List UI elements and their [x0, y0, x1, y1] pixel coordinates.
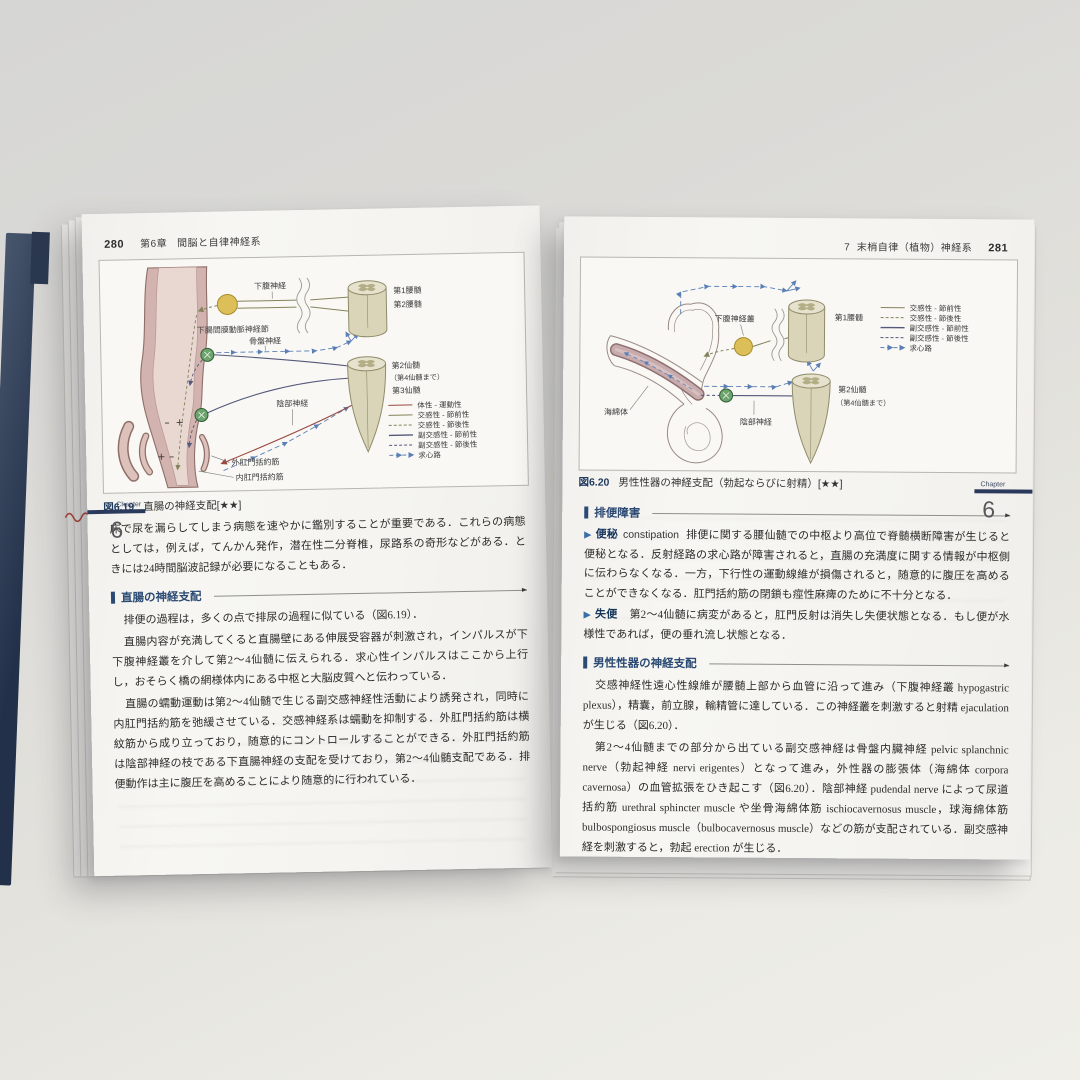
figure-6-20: 下腹神経叢 第1腰髄 海綿体 陰部神経 第2仙髄 （第4仙髄まで） 交感性 - …: [579, 256, 1018, 473]
section-title: 末梢自律（植物）神経系: [857, 242, 973, 254]
heading-rule: [213, 589, 526, 596]
label-s3: 第3仙髄: [392, 385, 421, 396]
heading-bar: [111, 592, 115, 604]
definition-item-constipation: ▶便秘constipation排便に関する腰仙髄での中枢より高位で脊髄横断障害が…: [584, 525, 1011, 606]
label-s2: 第2仙髄: [838, 384, 867, 394]
svg-text:−: −: [165, 419, 170, 428]
heading-text: 直腸の神経支配: [121, 588, 202, 606]
paragraph: 交感神経性遠心性線維が腰髄上部から血管に沿って進み（下腹神経叢 hypogast…: [583, 675, 1009, 738]
label-pelvic-nerve: 骨盤神経: [249, 335, 281, 346]
heading-text: 男性性器の神経支配: [593, 655, 697, 672]
corpus-cavernosum-band: [616, 350, 698, 395]
label-internal-anal-sphincter: 内肛門括約筋: [236, 471, 284, 482]
heading-bar: [584, 506, 588, 518]
label-l2: 第2腰髄: [393, 299, 422, 310]
figure-legend: 交感性 - 節前性 交感性 - 節後性 副交感性 - 節前性 副交感性 - 節後…: [880, 303, 969, 354]
svg-text:交感性 - 節後性: 交感性 - 節後性: [418, 419, 470, 430]
paragraph: 第2～4仙髄までの部分から出ている副交感神経は骨盤内臓神経 pelvic spl…: [582, 737, 1009, 860]
left-page: 280第6章間脳と自律神経系: [82, 205, 553, 876]
pudendal-ganglion-node: [720, 389, 733, 402]
spinal-cord-sacral: [792, 374, 831, 463]
book-cover-corner: [30, 232, 50, 285]
figure-6-19: − ＋ ＋ − 下腹神経 第1腰髄 第2腰髄 下腸間膜動脈神経節: [99, 252, 529, 494]
heading-rule: [652, 512, 1010, 515]
chapter-tab-number: 6: [974, 496, 1032, 523]
chapter-number: 第6章: [140, 239, 167, 251]
label-hypogastric-plexus: 下腹神経叢: [715, 313, 755, 323]
section-heading-defecation-disorders: 排便障害: [584, 504, 1010, 523]
paragraph-continuation: 床で尿を漏らしてしまう病態を速やかに鑑別することが重要である．これらの病態として…: [109, 512, 526, 580]
section-heading-rectum-innervation: 直腸の神経支配: [111, 582, 527, 606]
label-hypogastric-nerve: 下腹神経: [254, 280, 286, 291]
svg-text:副交感性 - 節前性: 副交感性 - 節前性: [418, 429, 478, 440]
label-s2-note: （第4仙髄まで）: [836, 398, 890, 407]
heading-text: 排便障害: [594, 505, 640, 521]
svg-text:＋: ＋: [157, 453, 165, 462]
right-page-stack: 7 末梢自律（植物）神経系281: [550, 214, 1055, 885]
page-number: 280: [104, 238, 124, 250]
label-s2: 第2仙髄: [391, 360, 420, 371]
label-inferior-mesenteric-ganglion: 下腸間膜動脈神経節: [197, 324, 269, 335]
inferior-mesenteric-ganglion-node: [217, 294, 237, 314]
term-en: constipation: [623, 529, 679, 541]
triangle-bullet-icon: ▶: [584, 609, 592, 620]
triangle-bullet-icon: ▶: [584, 529, 592, 540]
left-page-text: 床で尿を漏らしてしまう病態を速やかに鑑別することが重要である．これらの病態として…: [109, 512, 530, 797]
section-number: 7: [844, 242, 850, 253]
svg-text:＋: ＋: [176, 418, 184, 427]
term-jp: 便秘: [596, 529, 618, 541]
somatic-motor-pathway: [220, 404, 355, 464]
label-pointers: [195, 291, 294, 478]
label-corpus-cavernosum: 海綿体: [604, 407, 628, 417]
svg-text:副交感性 - 節前性: 副交感性 - 節前性: [910, 323, 970, 333]
page-number: 281: [988, 242, 1008, 254]
right-page-text: 排便障害 ▶便秘constipation排便に関する腰仙髄での中枢より高位で脊髄…: [582, 494, 1011, 862]
label-l1: 第1腰髄: [393, 285, 422, 296]
figure-number: 図6.20: [578, 476, 609, 488]
figure-legend: 体性 - 運動性 交感性 - 節前性 交感性 - 節後性 副交感性 - 節前性 …: [388, 399, 478, 461]
chapter-tab-label: Chapter: [87, 501, 145, 509]
chapter-tab: Chapter 6: [87, 501, 146, 544]
svg-text:求心路: 求心路: [909, 343, 932, 353]
chapter-tab-bar: [87, 509, 145, 514]
chapter-tab: Chapter 6: [974, 481, 1032, 523]
parasympathetic-pathways: [187, 352, 351, 447]
right-page: 7 末梢自律（植物）神経系281: [560, 216, 1034, 859]
svg-text:−: −: [169, 453, 174, 462]
chapter-tab-label: Chapter: [974, 481, 1032, 488]
label-external-anal-sphincter: 外肛門括約筋: [231, 456, 279, 467]
chapter-tab-bar: [974, 489, 1032, 493]
heading-bar: [583, 656, 587, 668]
male-genital-innervation-diagram: 下腹神経叢 第1腰髄 海綿体 陰部神経 第2仙髄 （第4仙髄まで） 交感性 - …: [580, 257, 1017, 472]
right-page-header: 7 末梢自律（植物）神経系281: [844, 238, 1008, 254]
svg-text:求心路: 求心路: [418, 449, 441, 459]
label-l1: 第1腰髄: [835, 312, 864, 322]
pudendal-pathway: [701, 395, 792, 396]
definition-item-fecal-incontinence: ▶失便第2～4仙髄に病変があると，肛門反射は消失し失便状態となる．もし便が水様性…: [583, 605, 1009, 647]
rectum-innervation-diagram: − ＋ ＋ − 下腹神経 第1腰髄 第2腰髄 下腸間膜動脈神経節: [100, 253, 528, 493]
left-page-header: 280第6章間脳と自律神経系: [104, 233, 261, 251]
svg-text:副交感性 - 節後性: 副交感性 - 節後性: [418, 439, 478, 450]
spinal-cord-lumbar: [788, 300, 824, 362]
svg-text:交感性 - 節前性: 交感性 - 節前性: [417, 409, 469, 420]
book-spine: [0, 233, 36, 886]
svg-text:交感性 - 節前性: 交感性 - 節前性: [910, 303, 962, 313]
svg-text:交感性 - 節後性: 交感性 - 節後性: [910, 313, 962, 323]
svg-text:体性 - 運動性: 体性 - 運動性: [417, 399, 462, 410]
label-pudendal-nerve: 陰部神経: [740, 417, 772, 427]
left-page-stack: 280第6章間脳と自律神経系: [50, 203, 563, 884]
heading-rule: [709, 663, 1009, 666]
wavy-interruption-marks: [772, 309, 784, 361]
figure-6-20-caption: 図6.20男性性器の神経支配（勃起ならびに射精）[★★]: [578, 474, 842, 491]
label-s2-note: （第4仙髄まで）: [390, 372, 444, 382]
pelvic-anatomy-outline: [606, 302, 723, 463]
chapter-tab-number: 6: [87, 516, 146, 544]
svg-text:副交感性 - 節後性: 副交感性 - 節後性: [909, 333, 969, 343]
paragraph: 直腸内容が充満してくると直腸壁にある伸展受容器が刺激され，インパルスが下下腹神経…: [112, 625, 529, 693]
figure-caption-text: 男性性器の神経支配（勃起ならびに射精）[★★]: [618, 477, 842, 491]
chapter-title: 間脳と自律神経系: [177, 237, 261, 250]
item-text: 第2～4仙髄に病変があると，肛門反射は消失し失便状態となる．もし便が水様性であれ…: [583, 609, 1009, 642]
book-photo: 280第6章間脳と自律神経系: [0, 0, 1080, 1080]
figure-caption-text: 直腸の神経支配[★★]: [143, 499, 241, 513]
hypogastric-plexus-node: [734, 338, 752, 356]
section-heading-male-genital-innervation: 男性性器の神経支配: [583, 654, 1009, 673]
paragraph: 直腸の蠕動運動は第2～4仙髄で生じる副交感神経性活動により誘発され，同時に内肛門…: [113, 687, 531, 795]
label-pudendal-nerve: 陰部神経: [276, 398, 308, 409]
wavy-interruption-marks: [296, 278, 310, 333]
spinal-cord-lumbar: [348, 280, 387, 337]
term-jp: 失便: [595, 609, 617, 621]
spinal-cord-sacral: [347, 356, 387, 452]
